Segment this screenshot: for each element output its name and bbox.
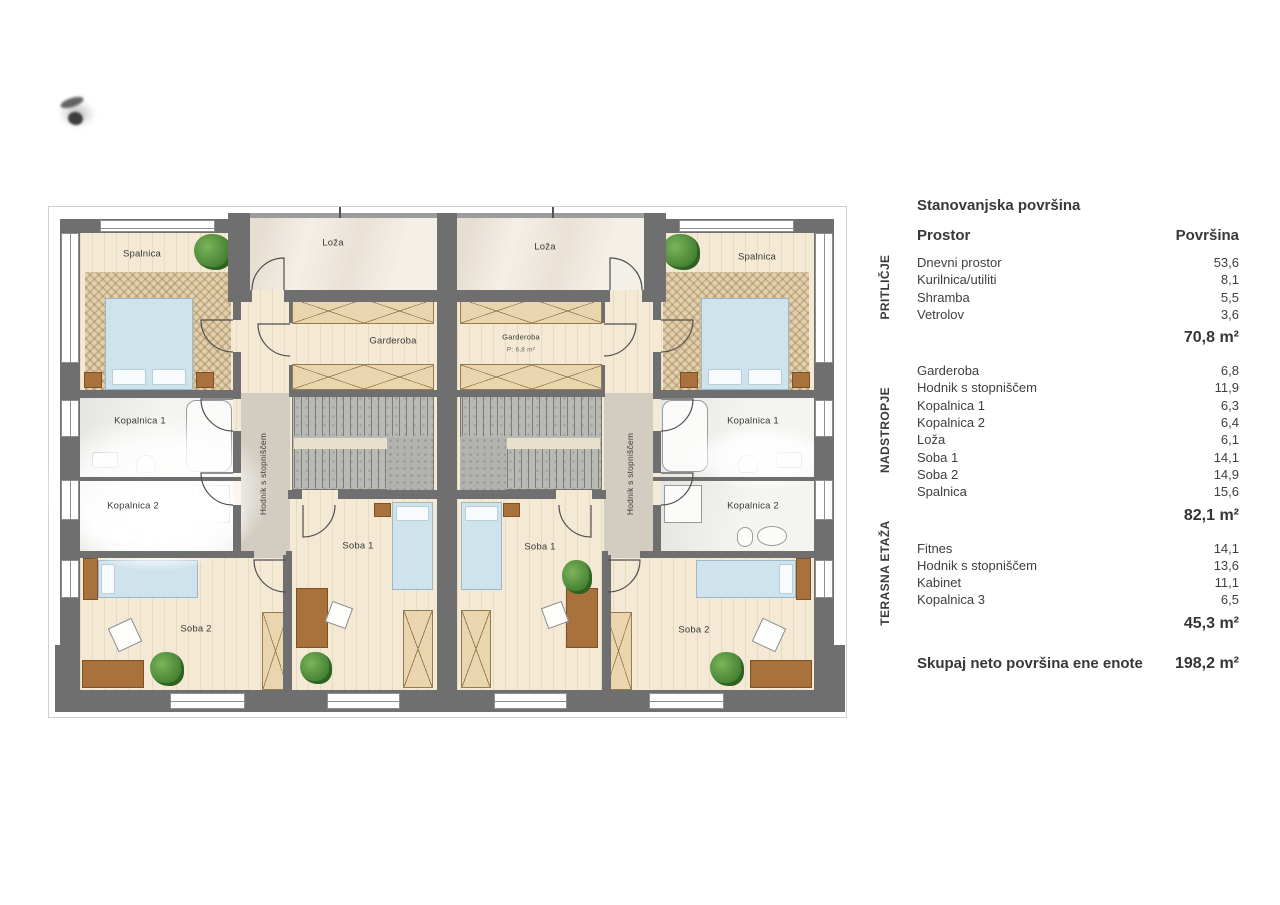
legend-row: Kurilnica/utiliti8,1	[917, 271, 1239, 288]
pillow	[112, 369, 146, 385]
loggia-parapet	[457, 213, 644, 218]
wall	[289, 390, 437, 397]
window	[61, 480, 79, 520]
stair-treads	[294, 449, 387, 488]
stair-mid-landing	[507, 438, 600, 449]
legend-col-area: Površina	[1176, 227, 1239, 244]
plant	[194, 234, 232, 270]
loza-left-floor	[250, 217, 437, 290]
nightstand	[196, 372, 214, 388]
room-label-garderoba-right: Garderoba	[502, 333, 540, 342]
stair-treads	[462, 396, 600, 436]
window	[61, 400, 79, 437]
stair-landing-slab	[460, 437, 506, 490]
desk	[296, 588, 328, 648]
room-label-soba1-right: Soba 1	[524, 542, 555, 553]
pillow	[708, 369, 742, 385]
room-label-hodnik-left: Hodnik s stopniščem	[258, 433, 268, 515]
wall	[228, 290, 252, 302]
pillow	[779, 564, 793, 594]
wall	[233, 505, 241, 558]
pillow	[152, 369, 186, 385]
plant	[150, 652, 184, 686]
room-label-garderoba-right-area: P: 6,8 m²	[507, 347, 535, 354]
window	[815, 480, 833, 520]
room-label-loza-right: Loža	[534, 242, 555, 253]
wall	[283, 555, 292, 692]
room-label-hodnik-right: Hodnik s stopniščem	[625, 433, 635, 515]
wall	[653, 352, 661, 399]
pillow	[748, 369, 782, 385]
desk	[750, 660, 812, 688]
room-label-soba1-left: Soba 1	[342, 541, 373, 552]
shower	[664, 485, 702, 523]
dimension-tick	[339, 207, 341, 218]
shelf	[374, 503, 391, 517]
wall	[602, 365, 605, 390]
sink	[757, 526, 787, 546]
party-wall	[437, 213, 457, 712]
wall	[457, 290, 610, 302]
subtotal-nadstropje: 82,1 m²	[917, 507, 1239, 525]
window	[100, 220, 215, 232]
stair-landing-slab	[387, 437, 433, 490]
room-label-soba2-right: Soba 2	[678, 625, 709, 636]
legend-total-row: Skupaj neto površina ene enote 198,2 m²	[917, 655, 1239, 673]
pillow	[465, 506, 498, 521]
window	[494, 693, 567, 709]
legend-title: Stanovanjska površina	[917, 197, 1239, 214]
room-label-kopalnica1-left: Kopalnica 1	[114, 416, 166, 427]
legend-row: Soba 214,9	[917, 466, 1239, 483]
floorplan-sheet: Spalnica Loža Garderoba Kopalnica 1 Kopa…	[0, 0, 1280, 905]
wall	[289, 365, 292, 390]
plant	[710, 652, 744, 686]
legend-section-terasna-etaza: TERASNA ETAŽA Fitnes14,1 Hodnik s stopni…	[917, 540, 1239, 633]
wall	[653, 390, 834, 398]
stair-treads	[507, 449, 600, 488]
wall	[457, 390, 605, 397]
window	[815, 233, 833, 363]
wall	[642, 290, 666, 302]
shelf	[503, 503, 520, 517]
window	[61, 233, 79, 363]
window	[649, 693, 724, 709]
legend-row: Kopalnica 36,5	[917, 591, 1239, 608]
total-label: Skupaj neto površina ene enote	[917, 655, 1143, 672]
wall	[60, 390, 241, 398]
headboard	[796, 558, 811, 600]
wall	[653, 505, 661, 558]
wall	[55, 645, 60, 690]
legend-row: Vetrolov3,6	[917, 306, 1239, 323]
wardrobe	[292, 364, 434, 390]
window	[327, 693, 400, 709]
legend-row: Soba 114,1	[917, 449, 1239, 466]
legend-row: Hodnik s stopniščem11,9	[917, 379, 1239, 396]
legend-row: Kopalnica 16,3	[917, 397, 1239, 414]
room-label-kopalnica1-right: Kopalnica 1	[727, 416, 779, 427]
wall	[284, 290, 437, 302]
nightstand	[680, 372, 698, 388]
plant	[562, 560, 592, 594]
window	[61, 560, 79, 598]
pillow	[396, 506, 429, 521]
wall	[653, 302, 661, 320]
wall	[233, 431, 241, 473]
wall	[60, 551, 254, 558]
stair-treads	[294, 396, 432, 436]
legend-section-nadstropje: NADSTROPJE Garderoba6,8 Hodnik s stopniš…	[917, 362, 1239, 524]
legend-row: Garderoba6,8	[917, 362, 1239, 379]
desk	[82, 660, 144, 688]
wall	[80, 477, 241, 481]
area-legend: Stanovanjska površina Prostor Površina P…	[917, 197, 1239, 673]
legend-row: Hodnik s stopniščem13,6	[917, 557, 1239, 574]
room-label-soba2-left: Soba 2	[180, 624, 211, 635]
room-label-spalnica-right: Spalnica	[738, 252, 776, 263]
wall	[653, 477, 814, 481]
legend-row: Shramba5,5	[917, 289, 1239, 306]
window	[170, 693, 245, 709]
wardrobe	[403, 610, 433, 688]
room-label-spalnica-left: Spalnica	[123, 249, 161, 260]
total-value: 198,2 m²	[1175, 655, 1239, 673]
wall	[338, 490, 437, 499]
window	[679, 220, 794, 232]
room-label-garderoba-left: Garderoba	[369, 336, 416, 347]
toilet	[737, 527, 753, 547]
plant	[662, 234, 700, 270]
window	[815, 560, 833, 598]
stair-mid-landing	[294, 438, 387, 449]
loza-right-floor	[457, 217, 644, 290]
legend-row: Dnevni prostor53,6	[917, 254, 1239, 271]
loggia-parapet	[250, 213, 437, 218]
wall	[602, 302, 605, 323]
room-label-loza-left: Loža	[322, 238, 343, 249]
subtotal-terasna-etaza: 45,3 m²	[917, 615, 1239, 633]
wall	[233, 352, 241, 399]
wall	[592, 490, 606, 499]
wall	[288, 490, 302, 499]
desk	[566, 588, 598, 648]
wardrobe	[460, 364, 602, 390]
wall	[834, 645, 845, 690]
room-label-kopalnica2-right: Kopalnica 2	[727, 501, 779, 512]
dimension-tick	[552, 207, 554, 218]
legend-row: Loža6,1	[917, 431, 1239, 448]
legend-col-room: Prostor	[917, 227, 970, 244]
wall	[602, 555, 611, 692]
wall	[640, 551, 834, 558]
plant	[300, 652, 332, 684]
wardrobe	[461, 610, 491, 688]
section-label-terasna-etaza: TERASNA ETAŽA	[878, 473, 892, 673]
legend-header: Prostor Površina	[917, 227, 1239, 244]
legend-row: Fitnes14,1	[917, 540, 1239, 557]
window	[815, 400, 833, 437]
subtotal-pritlicje: 70,8 m²	[917, 329, 1239, 347]
legend-row: Kabinet11,1	[917, 574, 1239, 591]
wall	[457, 490, 556, 499]
wall	[233, 302, 241, 320]
wall	[653, 431, 661, 473]
nightstand	[792, 372, 810, 388]
wall	[228, 213, 250, 302]
room-label-kopalnica2-left: Kopalnica 2	[107, 501, 159, 512]
legend-row: Kopalnica 26,4	[917, 414, 1239, 431]
nightstand	[84, 372, 102, 388]
wall	[289, 302, 292, 323]
legend-row: Spalnica15,6	[917, 483, 1239, 500]
legend-section-pritlicje: PRITLIČJE Dnevni prostor53,6 Kurilnica/u…	[917, 254, 1239, 347]
wall	[644, 213, 666, 302]
